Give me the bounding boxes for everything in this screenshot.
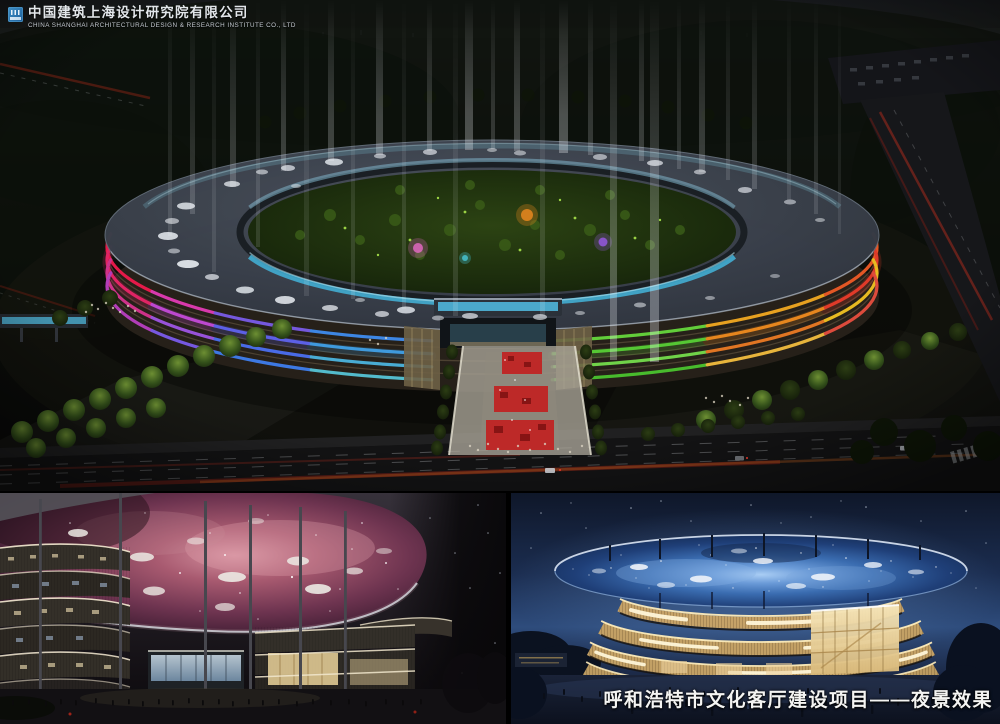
company-name: 中国建筑上海设计研究院有限公司 CHINA SHANGHAI ARCHITECT…	[28, 5, 296, 29]
company-name-en: CHINA SHANGHAI ARCHITECTURAL DESIGN & RE…	[28, 22, 296, 29]
presentation-board: 中国建筑上海设计研究院有限公司 CHINA SHANGHAI ARCHITECT…	[0, 0, 1000, 724]
glass-pavilion	[148, 651, 244, 689]
project-caption: 呼和浩特市文化客厅建设项目——夜景效果	[603, 685, 993, 712]
main-aerial-render: 中国建筑上海设计研究院有限公司 CHINA SHANGHAI ARCHITECT…	[0, 0, 1000, 491]
company-logo-block: 中国建筑上海设计研究院有限公司 CHINA SHANGHAI ARCHITECT…	[8, 5, 296, 29]
bottom-right-render: 呼和浩特市文化客厅建设项目——夜景效果	[511, 493, 1000, 724]
company-name-zh: 中国建筑上海设计研究院有限公司	[28, 5, 296, 21]
bottom-left-render	[0, 493, 506, 724]
entrance-glow	[661, 661, 792, 675]
glass-atrium	[811, 605, 899, 675]
company-logo-icon	[8, 7, 23, 22]
left-building	[0, 544, 132, 705]
